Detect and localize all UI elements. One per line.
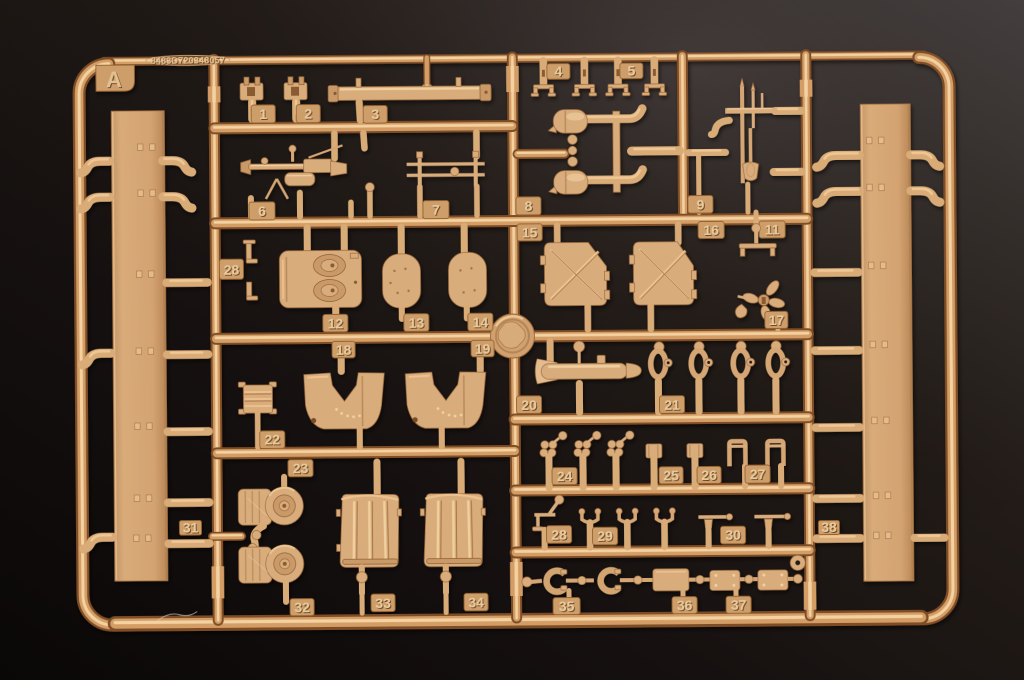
svg-text:31: 31 (183, 519, 199, 535)
svg-text:30: 30 (725, 527, 741, 543)
svg-text:34: 34 (468, 594, 484, 610)
svg-text:A: A (106, 67, 122, 92)
svg-text:26: 26 (701, 467, 717, 483)
svg-text:21: 21 (664, 397, 680, 413)
svg-text:20: 20 (521, 397, 537, 413)
svg-text:13: 13 (409, 315, 425, 331)
svg-text:6: 6 (258, 203, 266, 219)
svg-text:38: 38 (821, 519, 837, 535)
svg-text:1: 1 (259, 106, 267, 122)
svg-text:33: 33 (375, 595, 391, 611)
svg-text:8483D720348057: 8483D720348057 (151, 55, 225, 66)
svg-text:23: 23 (293, 460, 309, 476)
svg-text:29: 29 (597, 528, 613, 544)
svg-text:24: 24 (557, 468, 573, 484)
svg-text:14: 14 (473, 314, 489, 330)
svg-text:8: 8 (524, 198, 532, 214)
svg-text:11: 11 (765, 221, 780, 237)
svg-text:32: 32 (294, 599, 310, 615)
svg-text:18: 18 (336, 342, 352, 358)
svg-text:25: 25 (663, 467, 679, 483)
svg-text:12: 12 (328, 315, 344, 331)
svg-text:28: 28 (224, 262, 240, 278)
svg-text:4: 4 (554, 63, 562, 79)
svg-text:36: 36 (677, 597, 693, 613)
svg-text:2: 2 (304, 106, 312, 122)
svg-text:27: 27 (750, 466, 766, 482)
svg-text:7: 7 (432, 202, 440, 218)
svg-text:35: 35 (559, 598, 575, 614)
svg-text:16: 16 (703, 222, 719, 238)
svg-text:5: 5 (627, 63, 635, 79)
svg-text:9: 9 (696, 197, 704, 213)
svg-text:17: 17 (768, 312, 784, 328)
svg-text:22: 22 (264, 431, 280, 447)
svg-text:19: 19 (475, 341, 491, 357)
svg-text:15: 15 (522, 224, 538, 240)
svg-text:3: 3 (371, 106, 379, 122)
svg-text:37: 37 (731, 597, 747, 613)
svg-text:28: 28 (551, 527, 567, 543)
